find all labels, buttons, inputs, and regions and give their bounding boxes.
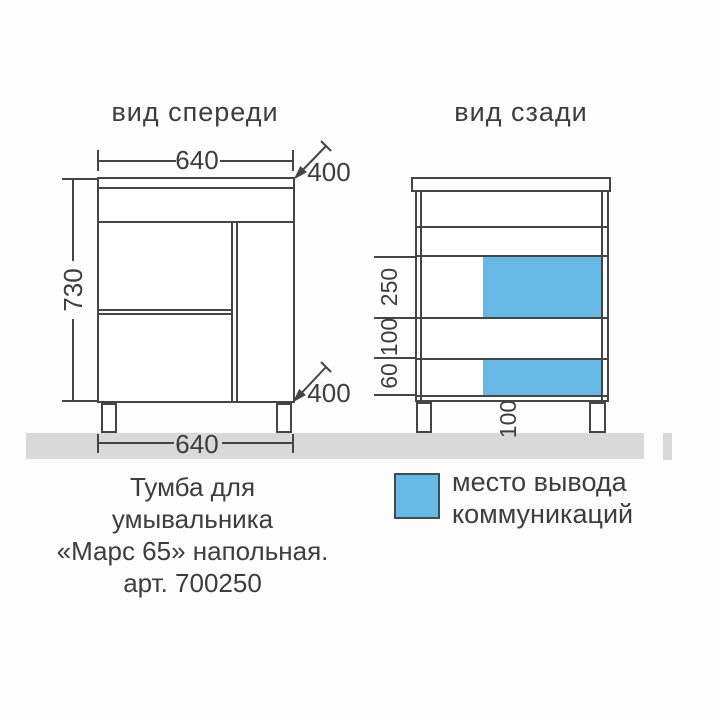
front-view-title: вид спереди	[95, 97, 295, 128]
cabinet-front-outline	[97, 177, 295, 403]
caption-line4: арт. 700250	[20, 567, 365, 599]
door-divider-line	[231, 222, 233, 402]
legend-color-swatch	[394, 473, 440, 519]
caption-line3: «Марс 65» напольная.	[20, 535, 365, 567]
extension-line	[62, 178, 98, 180]
dimension-line	[220, 160, 293, 162]
back-left-leg	[416, 402, 432, 433]
drawer-divider-line	[99, 313, 233, 315]
dimension-tick	[374, 394, 416, 396]
height-dimension: 730	[62, 255, 84, 325]
floor-band	[26, 433, 644, 459]
zone-gap-dimension: 100	[378, 314, 400, 360]
floor-band-sliver	[663, 433, 672, 460]
caption-line2: умывальника	[20, 503, 365, 535]
back-view-title: вид сзади	[431, 97, 611, 128]
countertop-line	[97, 187, 295, 189]
dimension-line	[98, 160, 176, 162]
door-divider-line	[236, 222, 238, 402]
dimension-tick	[97, 150, 99, 171]
dimension-tick	[97, 434, 99, 453]
depth-dimension-bottom: 400	[303, 380, 355, 406]
dimension-line	[98, 442, 174, 444]
side-panel-line	[601, 192, 603, 400]
depth-dimension-top: 400	[303, 159, 355, 185]
zone-lower-height-dimension: 60	[378, 358, 400, 394]
back-right-leg	[589, 402, 606, 433]
dimension-line	[72, 179, 74, 261]
zone-height-dimension: 250	[378, 257, 400, 317]
technical-drawing: вид спереди 640 730 400 400 640	[0, 0, 720, 720]
depth-arrow-bottom-tick	[321, 362, 331, 372]
dimension-tick	[292, 434, 294, 453]
dimension-line	[222, 442, 293, 444]
back-rail-line	[417, 317, 607, 319]
legend-label: место вывода коммуникаций	[452, 466, 692, 530]
width-dimension-top: 640	[171, 147, 223, 173]
caption-line1: Тумба для	[20, 471, 365, 503]
front-left-leg	[101, 403, 117, 433]
front-right-leg	[276, 403, 292, 433]
product-caption: Тумба для умывальника «Марс 65» напольна…	[20, 471, 365, 599]
comm-zone-lower	[483, 360, 601, 395]
legend-label-line1: место вывода	[452, 466, 692, 498]
top-rail-line	[99, 221, 293, 223]
comm-zone-upper	[483, 257, 601, 317]
side-panel-line	[420, 192, 422, 400]
drawer-divider-line	[99, 309, 233, 311]
depth-arrow-top-tick	[321, 141, 331, 151]
extension-line	[62, 400, 98, 402]
dimension-line	[72, 319, 74, 401]
dimension-tick	[292, 150, 294, 171]
zone-offset-dimension: 100	[497, 396, 519, 442]
legend-label-line2: коммуникаций	[452, 498, 692, 530]
width-dimension-bottom: 640	[171, 431, 223, 457]
back-rail-line	[417, 226, 607, 228]
